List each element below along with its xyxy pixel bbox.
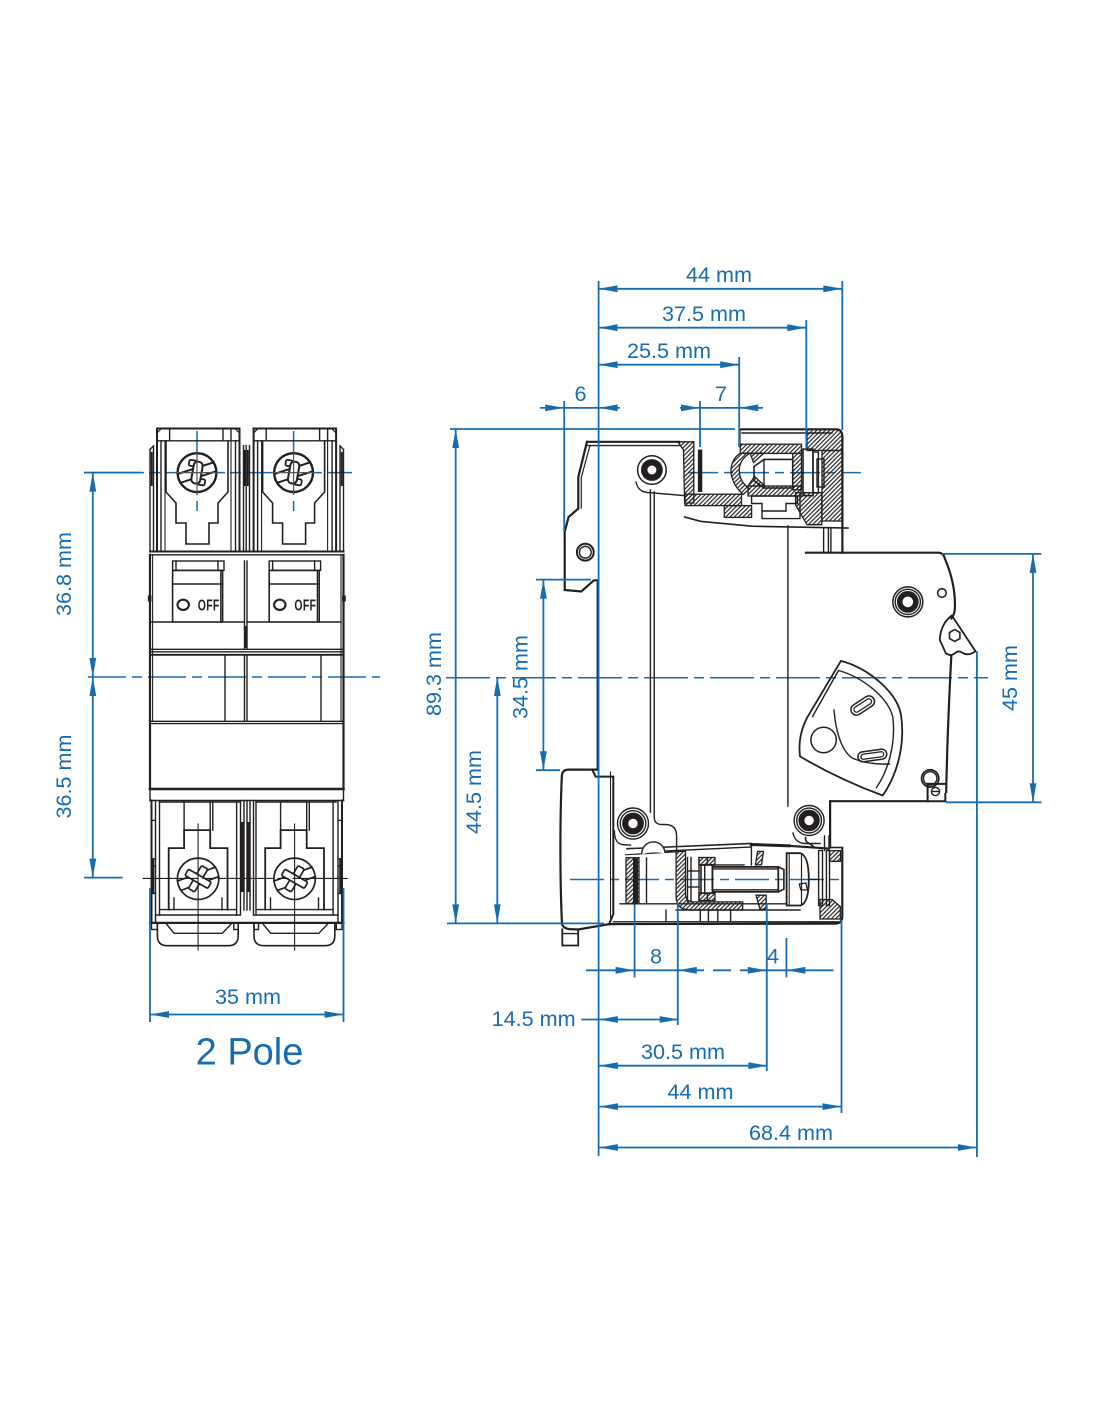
svg-text:37.5 mm: 37.5 mm [662, 301, 746, 326]
svg-text:30.5 mm: 30.5 mm [641, 1039, 725, 1064]
svg-text:34.5 mm: 34.5 mm [508, 635, 533, 719]
svg-text:36.5 mm: 36.5 mm [51, 734, 76, 818]
svg-text:OFF: OFF [198, 597, 220, 614]
svg-text:44 mm: 44 mm [668, 1079, 734, 1104]
svg-text:7: 7 [715, 381, 727, 406]
svg-text:14.5 mm: 14.5 mm [492, 1006, 576, 1031]
svg-text:68.4 mm: 68.4 mm [749, 1120, 833, 1145]
svg-text:44.5 mm: 44.5 mm [461, 750, 486, 834]
svg-text:35 mm: 35 mm [215, 984, 281, 1009]
svg-text:25.5 mm: 25.5 mm [627, 338, 711, 363]
svg-text:45 mm: 45 mm [997, 645, 1022, 711]
svg-text:8: 8 [650, 944, 662, 969]
svg-text:2 Pole: 2 Pole [196, 1032, 304, 1074]
svg-text:4: 4 [767, 944, 779, 969]
svg-text:OFF: OFF [294, 597, 316, 614]
svg-text:89.3 mm: 89.3 mm [421, 632, 446, 716]
svg-text:6: 6 [574, 381, 586, 406]
svg-text:44 mm: 44 mm [686, 262, 752, 287]
svg-text:36.8 mm: 36.8 mm [51, 532, 76, 616]
